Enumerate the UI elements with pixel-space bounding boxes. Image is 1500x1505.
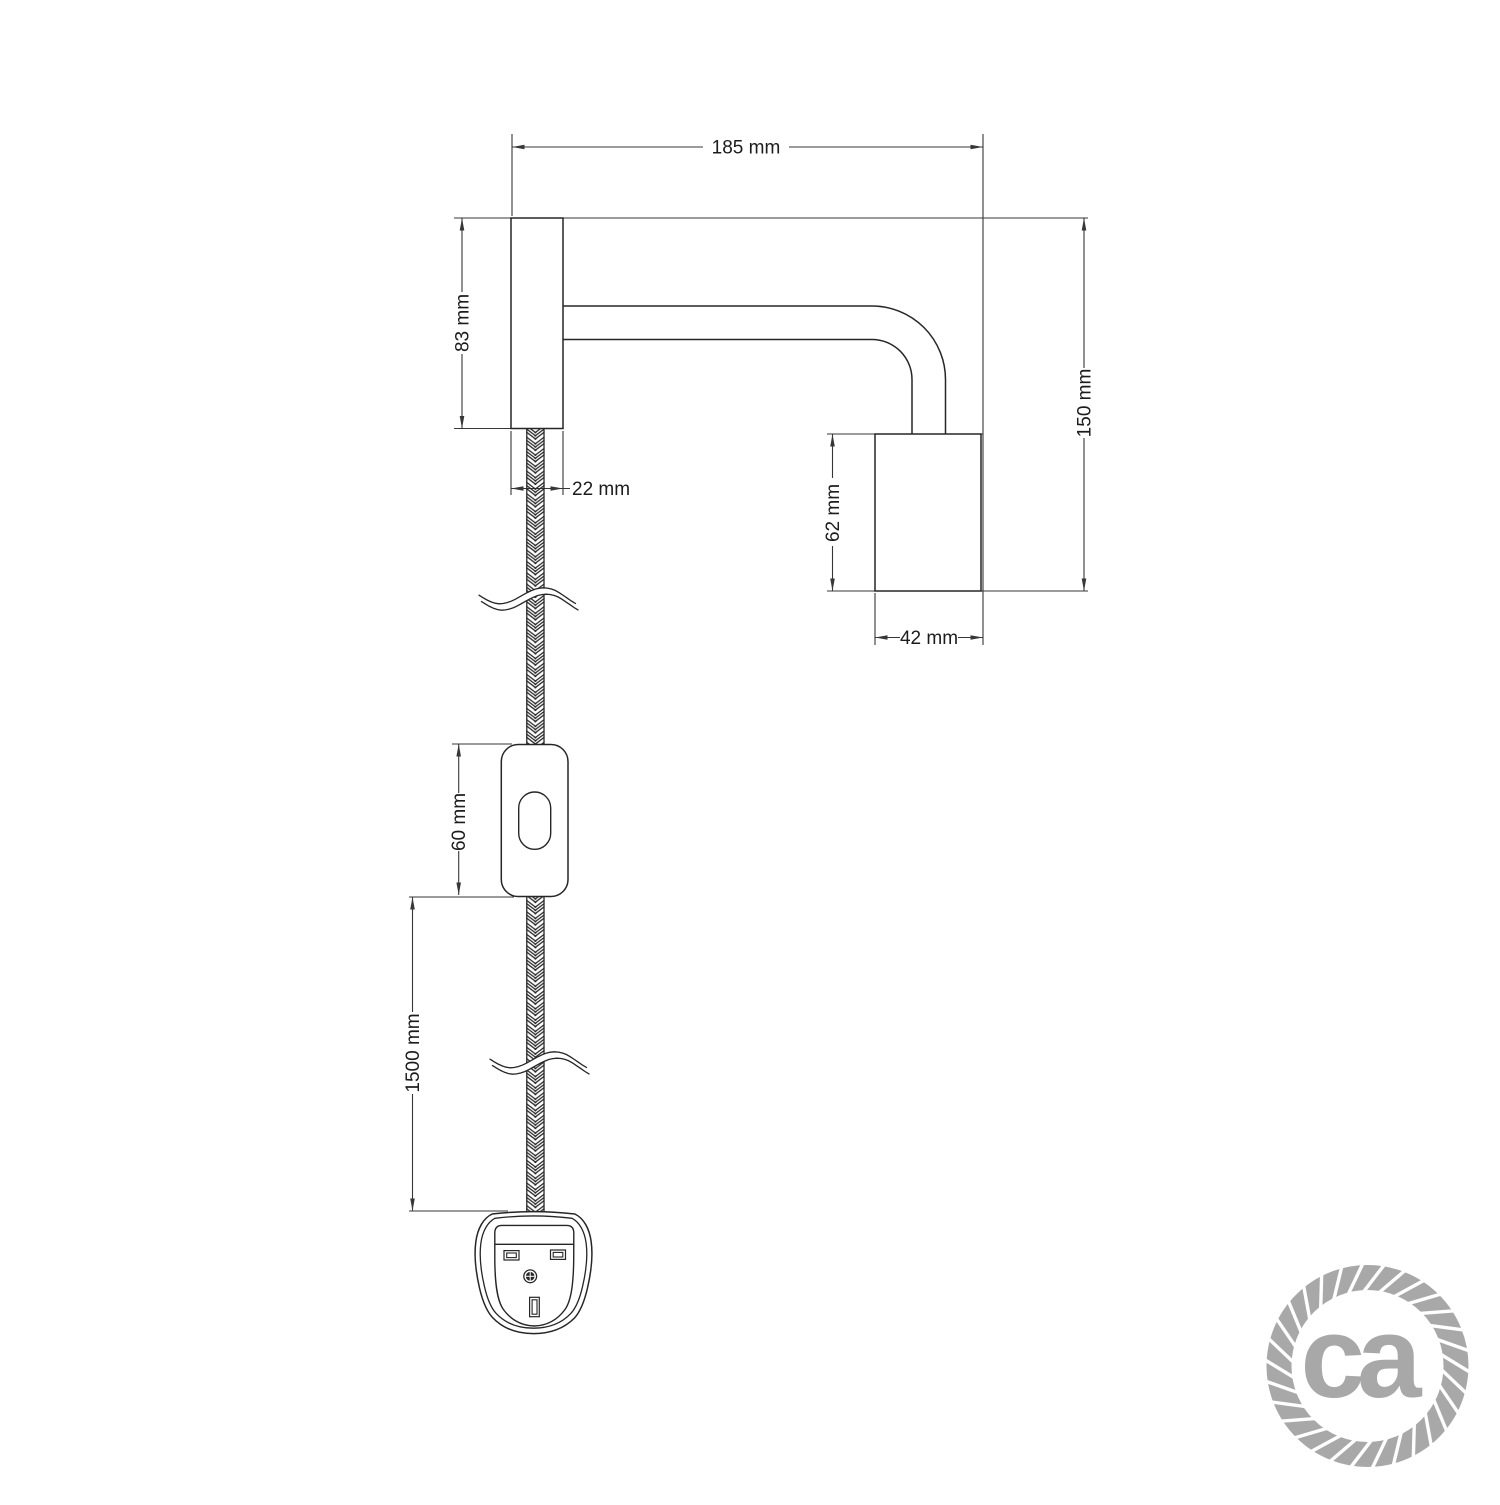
svg-text:150 mm: 150 mm — [1075, 369, 1096, 438]
svg-text:62 mm: 62 mm — [823, 484, 844, 542]
svg-text:60 mm: 60 mm — [449, 793, 470, 851]
svg-text:22 mm: 22 mm — [572, 479, 630, 500]
svg-text:185 mm: 185 mm — [712, 138, 781, 159]
svg-text:42 mm: 42 mm — [900, 628, 958, 649]
svg-text:ca: ca — [1300, 1292, 1423, 1422]
svg-text:1500 mm: 1500 mm — [403, 1013, 424, 1092]
svg-text:83 mm: 83 mm — [453, 294, 474, 352]
